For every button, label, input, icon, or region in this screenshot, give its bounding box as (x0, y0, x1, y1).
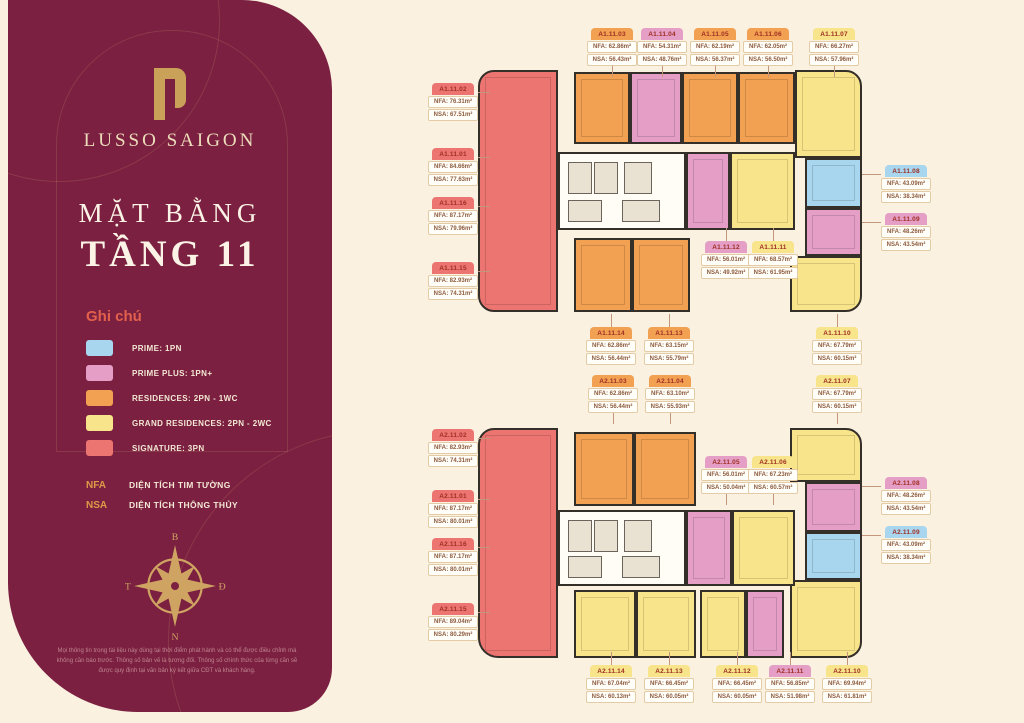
a2-unit-11-block (746, 590, 784, 658)
unit-nsa: NSA: 43.54m² (881, 503, 931, 515)
unit-nfa: NFA: 62.86m² (587, 41, 637, 53)
unit-code: A1.11.05 (694, 28, 736, 40)
unit-code: A2.11.06 (752, 456, 794, 468)
unit-code: A2.11.07 (816, 375, 858, 387)
abbreviations: NFA DIỆN TÍCH TIM TƯỜNG NSA DIỆN TÍCH TH… (86, 480, 238, 520)
leader-line (611, 314, 612, 327)
unit-nfa: NFA: 66.27m² (809, 41, 859, 53)
a2-unit-05-block (686, 510, 732, 586)
unit-nsa: NSA: 60.13m² (586, 691, 636, 703)
unit-nsa: NSA: 50.04m² (701, 482, 751, 494)
unit-chip-a1-11-12: A1.11.12 NFA: 56.01m² NSA: 49.92m² (701, 241, 751, 279)
unit-nfa: NFA: 62.86m² (588, 388, 638, 400)
unit-nsa: NSA: 74.31m² (428, 455, 478, 467)
elevator-cell (624, 162, 652, 194)
unit-chip-a1-11-06: A1.11.06 NFA: 62.05m² NSA: 56.50m² (743, 28, 793, 66)
unit-chip-a1-11-05: A1.11.05 NFA: 62.19m² NSA: 56.37m² (690, 28, 740, 66)
unit-nfa: NFA: 67.79m² (812, 340, 862, 352)
unit-nsa: NSA: 57.96m² (809, 54, 859, 66)
unit-code: A1.11.09 (885, 213, 927, 225)
unit-chip-a2-11-01: A2.11.01 NFA: 87.17m² NSA: 80.01m² (428, 490, 478, 528)
a2-unit-04-block (634, 432, 696, 506)
unit-nfa: NFA: 82.93m² (428, 275, 478, 287)
compass-south: N (171, 632, 178, 642)
legend-item-signature: SIGNATURE: 3PN (86, 440, 326, 456)
leader-line (670, 413, 671, 424)
a2-unit-14-block (574, 590, 636, 658)
unit-chip-a1-11-03: A1.11.03 NFA: 62.86m² NSA: 56.43m² (587, 28, 637, 66)
unit-nsa: NSA: 48.76m² (637, 54, 687, 66)
a1-unit-12-block (686, 152, 730, 230)
elevator-cell (568, 162, 592, 194)
stair-cell (568, 556, 602, 578)
elevator-cell (594, 520, 618, 552)
unit-nsa: NSA: 77.63m² (428, 174, 478, 186)
unit-nfa: NFA: 68.57m² (748, 254, 798, 266)
unit-code: A2.11.08 (885, 477, 927, 489)
unit-nfa: NFA: 67.23m² (748, 469, 798, 481)
unit-code: A2.11.05 (705, 456, 747, 468)
unit-nfa: NFA: 56.85m² (765, 678, 815, 690)
elevator-cell (594, 162, 618, 194)
leader-line (862, 222, 881, 223)
unit-nfa: NFA: 56.01m² (701, 469, 751, 481)
unit-chip-a1-11-11: A1.11.11 NFA: 68.57m² NSA: 61.95m² (748, 241, 798, 279)
a1-signature-wing (478, 70, 558, 312)
unit-chip-a2-11-02: A2.11.02 NFA: 82.93m² NSA: 74.31m² (428, 429, 478, 467)
leader-line (862, 174, 881, 175)
unit-code: A1.11.10 (816, 327, 858, 339)
stair-cell (568, 200, 602, 222)
unit-chip-a1-11-15: A1.11.15 NFA: 82.93m² NSA: 74.31m² (428, 262, 478, 300)
unit-chip-a1-11-01: A1.11.01 NFA: 84.66m² NSA: 77.63m² (428, 148, 478, 186)
compass-west: T (125, 582, 131, 593)
unit-nfa: NFA: 62.05m² (743, 41, 793, 53)
unit-nsa: NSA: 55.93m² (645, 401, 695, 413)
unit-chip-a1-11-08: A1.11.08 NFA: 43.09m² NSA: 38.34m² (881, 165, 931, 203)
unit-code: A1.11.04 (641, 28, 683, 40)
floorplan-tower-a2 (470, 424, 872, 664)
leader-line (613, 413, 614, 424)
unit-chip-a2-11-05: A2.11.05 NFA: 56.01m² NSA: 50.04m² (701, 456, 751, 494)
abbr-nfa: NFA DIỆN TÍCH TIM TƯỜNG (86, 480, 238, 491)
title-line-1: MẶT BẰNG (8, 198, 332, 229)
unit-nsa: NSA: 80.01m² (428, 516, 478, 528)
unit-chip-a2-11-07: A2.11.07 NFA: 67.79m² NSA: 60.15m² (812, 375, 862, 413)
a1-unit-04-block (630, 72, 682, 144)
unit-code: A2.11.16 (432, 538, 474, 550)
unit-nsa: NSA: 56.44m² (588, 401, 638, 413)
unit-chip-a1-11-07: A1.11.07 NFA: 66.27m² NSA: 57.96m² (809, 28, 859, 66)
legend-swatch-prime (86, 340, 113, 356)
leader-line (834, 66, 835, 77)
leader-line (669, 314, 670, 327)
unit-chip-a1-11-02: A1.11.02 NFA: 76.31m² NSA: 67.51m² (428, 83, 478, 121)
legend-swatch-prime-plus (86, 365, 113, 381)
elevator-cell (568, 520, 592, 552)
a1-unit-11-block (730, 152, 795, 230)
unit-nsa: NSA: 56.44m² (586, 353, 636, 365)
unit-nfa: NFA: 84.66m² (428, 161, 478, 173)
unit-code: A1.11.15 (432, 262, 474, 274)
unit-code: A2.11.01 (432, 490, 474, 502)
unit-chip-a1-11-13: A1.11.13 NFA: 63.15m² NSA: 55.79m² (644, 327, 694, 365)
title-line-2: TẦNG 11 (8, 233, 332, 276)
unit-nfa: NFA: 67.04m² (586, 678, 636, 690)
leader-line (847, 652, 848, 665)
unit-code: A2.11.09 (885, 526, 927, 538)
unit-nsa: NSA: 51.98m² (765, 691, 815, 703)
unit-nsa: NSA: 56.37m² (690, 54, 740, 66)
unit-nsa: NSA: 74.31m² (428, 288, 478, 300)
unit-nsa: NSA: 80.29m² (428, 629, 478, 641)
unit-code: A1.11.08 (885, 165, 927, 177)
poster: LUSSO SAIGON MẶT BẰNG TẦNG 11 Ghi chú PR… (0, 0, 1024, 723)
legend-swatch-grand (86, 415, 113, 431)
a2-unit-07-block (790, 428, 862, 482)
a2-unit-12-block (700, 590, 746, 658)
unit-nfa: NFA: 48.26m² (881, 490, 931, 502)
a2-unit-08-block (805, 482, 862, 532)
leader-line (715, 66, 716, 77)
unit-nfa: NFA: 43.09m² (881, 539, 931, 551)
unit-code: A2.11.04 (649, 375, 691, 387)
stair-cell (622, 200, 660, 222)
unit-code: A1.11.01 (432, 148, 474, 160)
unit-nfa: NFA: 89.04m² (428, 616, 478, 628)
unit-code: A2.11.12 (716, 665, 758, 677)
unit-nsa: NSA: 60.15m² (812, 401, 862, 413)
unit-nsa: NSA: 79.96m² (428, 223, 478, 235)
leader-line (478, 271, 490, 272)
unit-chip-a2-11-06: A2.11.06 NFA: 67.23m² NSA: 60.57m² (748, 456, 798, 494)
a1-unit-14-block (574, 238, 632, 312)
a1-core-block (558, 152, 686, 230)
leader-line (669, 652, 670, 665)
legend-item-prime: PRIME: 1PN (86, 340, 326, 356)
a2-signature-wing (478, 428, 558, 658)
unit-nfa: NFA: 43.09m² (881, 178, 931, 190)
unit-nsa: NSA: 60.05m² (712, 691, 762, 703)
unit-chip-a1-11-14: A1.11.14 NFA: 62.86m² NSA: 56.44m² (586, 327, 636, 365)
unit-nsa: NSA: 38.34m² (881, 552, 931, 564)
unit-code: A1.11.06 (747, 28, 789, 40)
unit-chip-a1-11-09: A1.11.09 NFA: 48.26m² NSA: 43.54m² (881, 213, 931, 251)
leader-line (478, 206, 490, 207)
unit-chip-a2-11-10: A2.11.10 NFA: 69.94m² NSA: 61.81m² (822, 665, 872, 703)
unit-chip-a2-11-12: A2.11.12 NFA: 66.45m² NSA: 60.05m² (712, 665, 762, 703)
leader-line (737, 652, 738, 665)
unit-code: A1.11.07 (813, 28, 855, 40)
leader-line (790, 652, 791, 665)
sidebar-panel: LUSSO SAIGON MẶT BẰNG TẦNG 11 Ghi chú PR… (8, 0, 332, 712)
unit-chip-a2-11-11: A2.11.11 NFA: 56.85m² NSA: 51.98m² (765, 665, 815, 703)
unit-nfa: NFA: 82.93m² (428, 442, 478, 454)
elevator-cell (624, 520, 652, 552)
leader-line (478, 92, 490, 93)
unit-code: A1.11.14 (590, 327, 632, 339)
a2-unit-13-block (636, 590, 696, 658)
unit-code: A1.11.11 (752, 241, 794, 253)
a2-unit-03-block (574, 432, 634, 506)
brand-name: LUSSO SAIGON (8, 130, 332, 152)
unit-nfa: NFA: 87.17m² (428, 551, 478, 563)
unit-chip-a2-11-16: A2.11.16 NFA: 87.17m² NSA: 80.01m² (428, 538, 478, 576)
unit-nfa: NFA: 66.45m² (644, 678, 694, 690)
unit-chip-a1-11-16: A1.11.16 NFA: 87.17m² NSA: 79.96m² (428, 197, 478, 235)
a1-unit-03-block (574, 72, 630, 144)
unit-nsa: NSA: 56.50m² (743, 54, 793, 66)
unit-chip-a1-11-04: A1.11.04 NFA: 54.31m² NSA: 48.76m² (637, 28, 687, 66)
unit-nsa: NSA: 67.51m² (428, 109, 478, 121)
disclaimer-text: Mọi thông tin trong tài liệu này dùng tạ… (50, 647, 304, 677)
legend-item-grand-residences: GRAND RESIDENCES: 2PN - 2WC (86, 415, 326, 431)
leader-line (478, 499, 490, 500)
unit-code: A1.11.12 (705, 241, 747, 253)
unit-nsa: NSA: 43.54m² (881, 239, 931, 251)
unit-nsa: NSA: 55.79m² (644, 353, 694, 365)
legend-item-residences: RESIDENCES: 2PN - 1WC (86, 390, 326, 406)
leader-line (478, 612, 490, 613)
leader-line (862, 535, 881, 536)
unit-nfa: NFA: 76.31m² (428, 96, 478, 108)
lusso-logo-icon (151, 68, 189, 120)
unit-nfa: NFA: 62.86m² (586, 340, 636, 352)
leader-line (662, 66, 663, 77)
unit-code: A1.11.03 (591, 28, 633, 40)
unit-nfa: NFA: 63.15m² (644, 340, 694, 352)
unit-nsa: NSA: 56.43m² (587, 54, 637, 66)
unit-nfa: NFA: 87.17m² (428, 210, 478, 222)
a2-unit-09-block (805, 532, 862, 580)
unit-nfa: NFA: 87.17m² (428, 503, 478, 515)
legend: Ghi chú PRIME: 1PN PRIME PLUS: 1PN+ RESI… (86, 308, 326, 465)
unit-code: A2.11.13 (648, 665, 690, 677)
leader-line (837, 314, 838, 327)
unit-nfa: NFA: 69.94m² (822, 678, 872, 690)
unit-nsa: NSA: 60.05m² (644, 691, 694, 703)
a1-unit-07-block (795, 70, 862, 158)
unit-nfa: NFA: 54.31m² (637, 41, 687, 53)
unit-code: A2.11.11 (769, 665, 811, 677)
unit-nsa: NSA: 80.01m² (428, 564, 478, 576)
page-title: MẶT BẰNG TẦNG 11 (8, 198, 332, 276)
unit-nfa: NFA: 62.19m² (690, 41, 740, 53)
floorplan-tower-a1 (470, 64, 872, 314)
legend-heading: Ghi chú (86, 308, 326, 325)
a2-core-block (558, 510, 686, 586)
unit-chip-a2-11-15: A2.11.15 NFA: 89.04m² NSA: 80.29m² (428, 603, 478, 641)
unit-nfa: NFA: 63.10m² (645, 388, 695, 400)
unit-nsa: NSA: 61.81m² (822, 691, 872, 703)
leader-line (478, 157, 490, 158)
unit-chip-a1-11-10: A1.11.10 NFA: 67.79m² NSA: 60.15m² (812, 327, 862, 365)
unit-chip-a2-11-13: A2.11.13 NFA: 66.45m² NSA: 60.05m² (644, 665, 694, 703)
leader-line (862, 486, 881, 487)
leader-line (773, 494, 774, 505)
legend-item-prime-plus: PRIME PLUS: 1PN+ (86, 365, 326, 381)
abbr-nsa: NSA DIỆN TÍCH THÔNG THỦY (86, 500, 238, 511)
leader-line (478, 438, 490, 439)
unit-code: A2.11.02 (432, 429, 474, 441)
leader-line (726, 494, 727, 505)
unit-nsa: NSA: 49.92m² (701, 267, 751, 279)
unit-nfa: NFA: 48.26m² (881, 226, 931, 238)
unit-nsa: NSA: 38.34m² (881, 191, 931, 203)
unit-chip-a2-11-08: A2.11.08 NFA: 48.26m² NSA: 43.54m² (881, 477, 931, 515)
a1-unit-05-block (682, 72, 738, 144)
leader-line (612, 66, 613, 77)
unit-code: A2.11.03 (592, 375, 634, 387)
a2-unit-10-block (790, 580, 862, 658)
a2-unit-06-block (732, 510, 795, 586)
leader-line (478, 547, 490, 548)
a1-unit-09-block (805, 208, 862, 256)
unit-code: A1.11.02 (432, 83, 474, 95)
unit-nsa: NSA: 60.15m² (812, 353, 862, 365)
leader-line (773, 228, 774, 241)
unit-code: A1.11.16 (432, 197, 474, 209)
compass-icon: B Đ N T (121, 530, 229, 642)
unit-code: A2.11.14 (590, 665, 632, 677)
legend-swatch-signature (86, 440, 113, 456)
unit-code: A2.11.10 (826, 665, 868, 677)
a1-unit-10-block (790, 256, 862, 312)
unit-nsa: NSA: 61.95m² (748, 267, 798, 279)
a1-unit-13-block (632, 238, 690, 312)
unit-nsa: NSA: 60.57m² (748, 482, 798, 494)
leader-line (726, 228, 727, 241)
a1-unit-06-block (738, 72, 795, 144)
leader-line (768, 66, 769, 77)
unit-code: A1.11.13 (648, 327, 690, 339)
unit-chip-a2-11-09: A2.11.09 NFA: 43.09m² NSA: 38.34m² (881, 526, 931, 564)
leader-line (611, 652, 612, 665)
unit-nfa: NFA: 66.45m² (712, 678, 762, 690)
unit-nfa: NFA: 56.01m² (701, 254, 751, 266)
a1-unit-08-block (805, 158, 862, 208)
unit-code: A2.11.15 (432, 603, 474, 615)
compass-east: Đ (219, 582, 226, 593)
leader-line (837, 413, 838, 424)
compass-north: B (172, 532, 179, 543)
stair-cell (622, 556, 660, 578)
legend-swatch-residences (86, 390, 113, 406)
unit-chip-a2-11-04: A2.11.04 NFA: 63.10m² NSA: 55.93m² (645, 375, 695, 413)
unit-nfa: NFA: 67.79m² (812, 388, 862, 400)
unit-chip-a2-11-03: A2.11.03 NFA: 62.86m² NSA: 56.44m² (588, 375, 638, 413)
unit-chip-a2-11-14: A2.11.14 NFA: 67.04m² NSA: 60.13m² (586, 665, 636, 703)
